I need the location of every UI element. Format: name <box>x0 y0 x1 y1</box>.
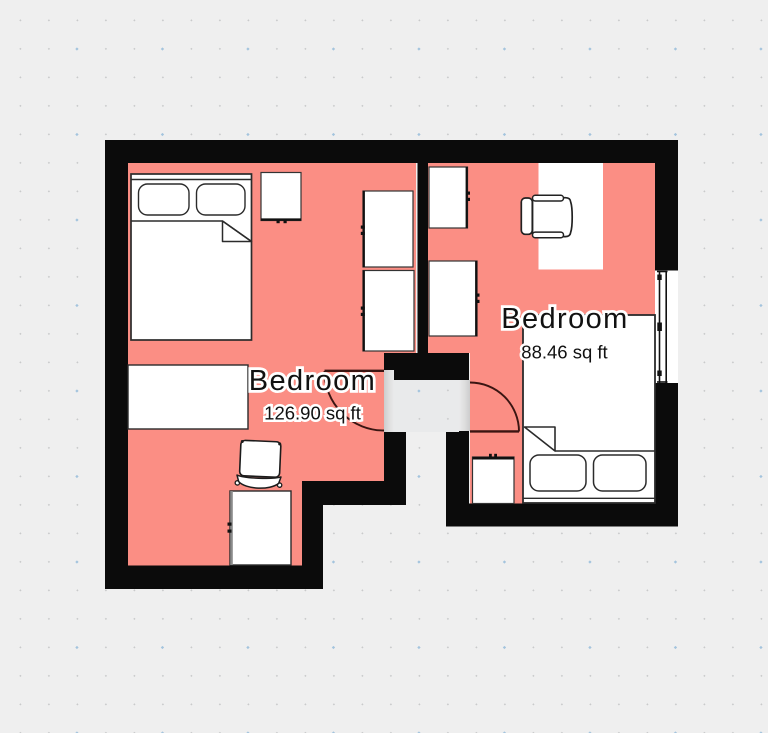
svg-text:88.46 sq ft: 88.46 sq ft <box>521 342 607 363</box>
svg-text:Bedroom: Bedroom <box>249 365 376 397</box>
svg-text:126.90 sq ft: 126.90 sq ft <box>264 403 361 424</box>
svg-text:Bedroom: Bedroom <box>501 303 628 335</box>
